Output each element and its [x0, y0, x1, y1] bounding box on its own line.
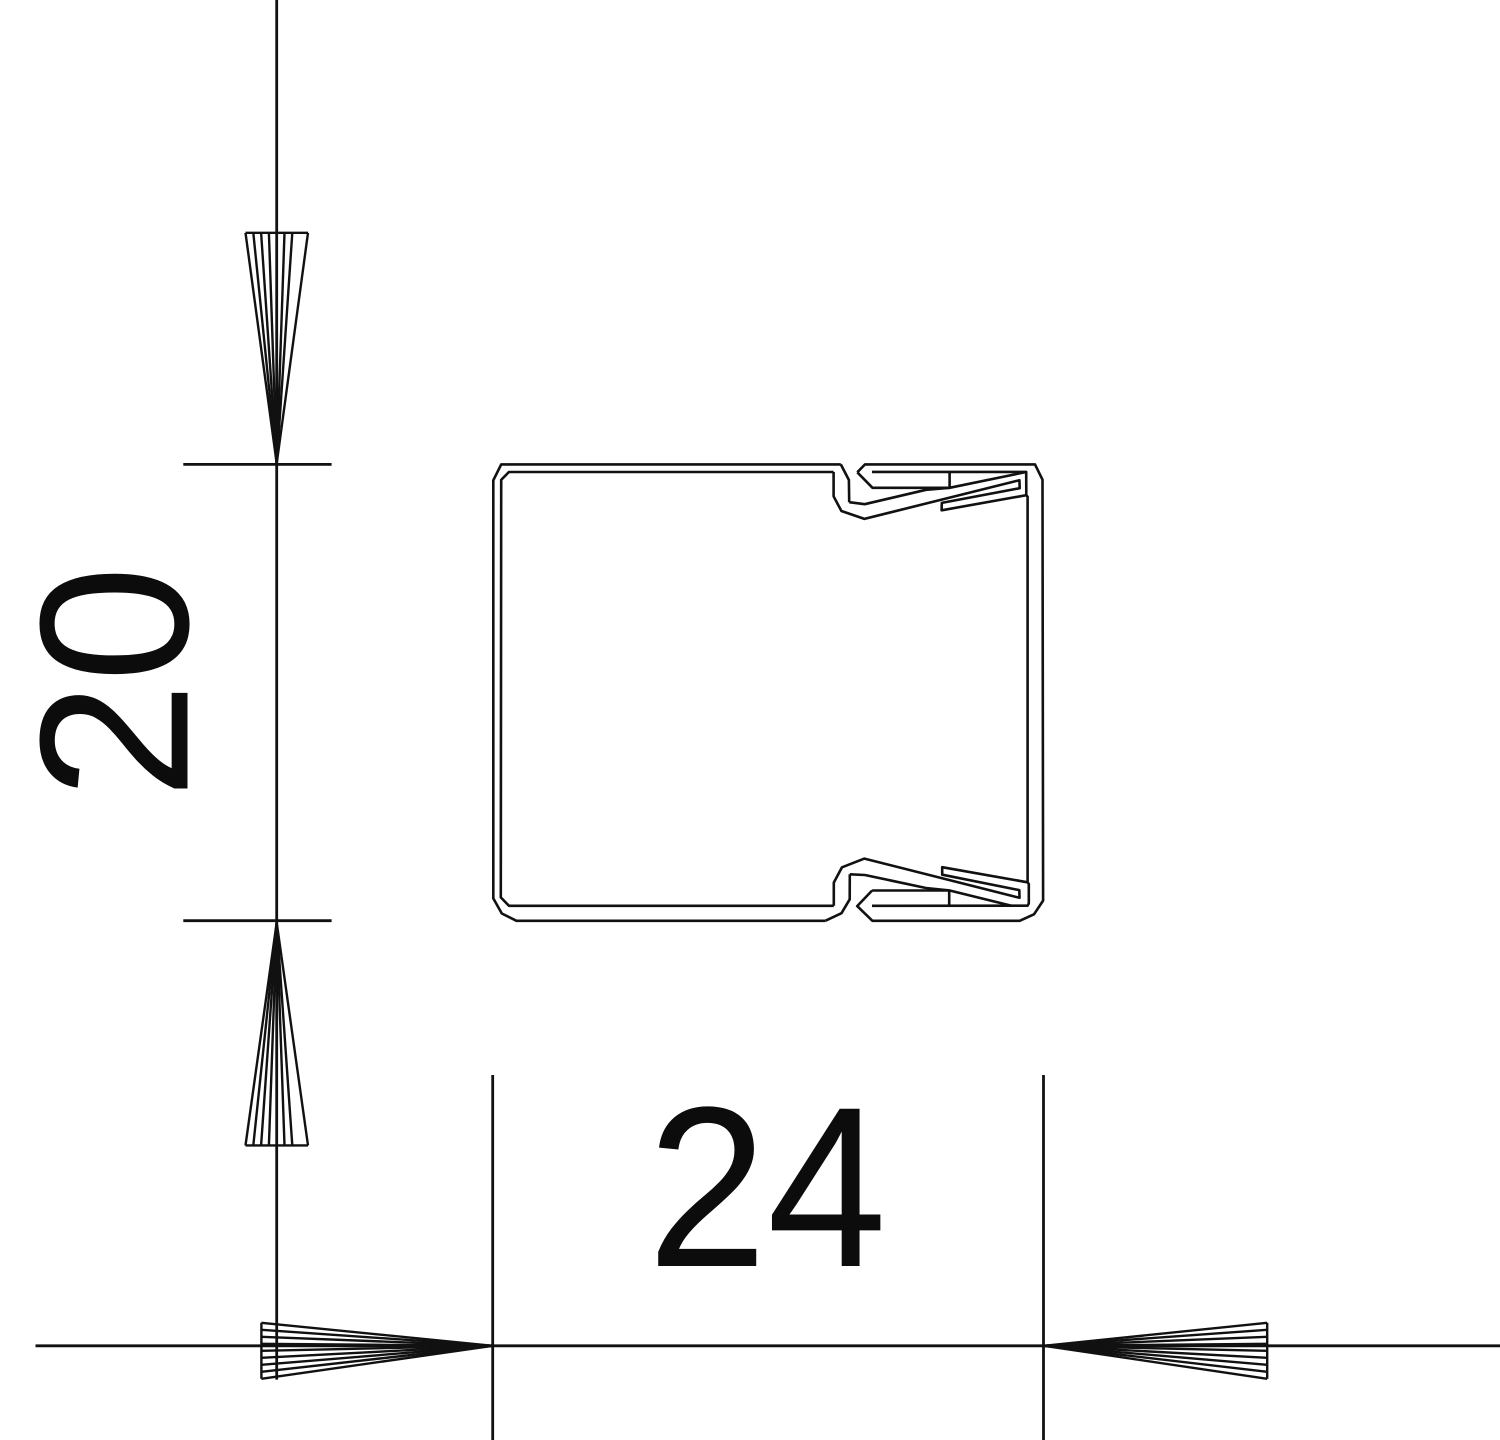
svg-text:24: 24: [647, 1060, 886, 1315]
svg-text:20: 20: [0, 566, 233, 799]
